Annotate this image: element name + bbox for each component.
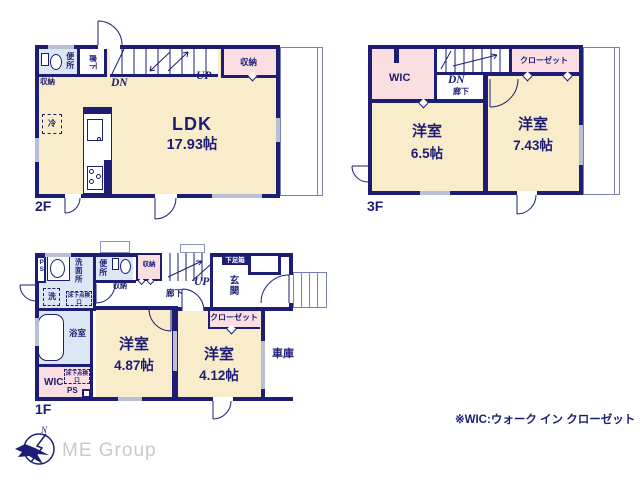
wall-3f-wic-stub [394,49,399,63]
label-1f-up: UP [194,276,209,289]
window-1f-room2-right [261,341,265,389]
toilet-1f-tank-icon [112,258,119,270]
label-2f-storage: 収納 [226,58,271,67]
label-2f-storage-left: 収納 [40,78,55,86]
wall-1f-bath-right [90,311,93,400]
balcony-2f-rail [317,48,318,195]
label-1f-toilet: 便所 [98,259,107,277]
eaves-1f-b [180,244,205,253]
toilet-2f-tank-icon [41,53,49,66]
window-1f-left-bath [35,318,39,346]
window-3f-right [579,125,583,165]
window-1f-bottom-left [118,397,142,401]
label-1f-ps-top: PS [38,259,45,273]
entrance-step-line [309,272,310,308]
label-1f-ps-bottom: PS [67,387,78,396]
kitchen-cap [83,107,112,113]
window-2f-bottom [212,194,262,198]
label-floor-3f: 3F [367,199,383,214]
label-1f-wic: WIC [44,377,63,388]
label-3f-room2: 洋室 [483,117,583,134]
label-2f-up: UP [196,70,211,83]
stairs-3f-treads [437,49,509,72]
label-1f-shoebox: 下足箱 [222,257,248,264]
room-1f-bedroom1 [96,310,172,397]
stove-burner-icon [89,179,94,184]
stove-burner-icon [96,174,101,179]
wall-1f-washroom-bottom [35,308,96,311]
kitchen-faucet-icon [97,137,101,141]
label-2f-dn: DN [111,77,128,90]
label-1f-storage-small: 収納 [113,283,127,291]
door-gap-2f-top [98,45,120,49]
label-1f-laundry: 洗 [48,293,56,302]
bathtub-icon [38,314,64,361]
kitchen-divider [104,160,112,194]
window-2f-right [276,118,280,142]
entrance-step-line [317,272,318,308]
window-2f-top [48,45,74,49]
label-3f-hall: 廊下 [453,88,469,97]
balcony-3f-rail [614,48,615,194]
toilet-2f-bowl-icon [50,54,62,70]
label-floor-2f: 2F [35,199,51,214]
label-1f-hall: 廊下 [166,289,183,298]
wall-1f-bottom [35,397,293,401]
door-gap-1f-room2 [182,307,204,311]
toilet-1f-bowl-icon [120,259,131,274]
label-1f-hatch-top: 床下点検口 [68,293,90,306]
label-1f-room2: 洋室 [169,347,269,364]
label-2f-hall: 廊下 [88,55,96,70]
label-3f-room1: 洋室 [377,124,477,141]
door-gap-2f-b2 [155,194,177,198]
wic-note: ※WIC:ウォーク イン クローゼット [455,414,635,427]
window-1f-top [45,253,71,257]
label-2f-ldk-size: 17.93帖 [142,138,242,154]
label-3f-wic: WIC [389,72,410,84]
brand-text: ME Group [62,441,157,462]
label-2f-ldk: LDK [142,115,242,135]
label-1f-closet: クローゼット [208,314,260,323]
label-3f-closet: クローゼット [511,57,577,66]
wall-1f-stairs-right [210,253,213,307]
sink-basin-icon [50,259,65,278]
window-3f-bottom [420,191,450,195]
compass-logo: N [12,424,64,476]
door-gap-1f-bottom [213,397,233,401]
label-2f-fridge: 冷 [48,120,56,129]
label-floor-1f: 1F [35,402,51,417]
door-gap-3f-bottom [517,191,537,195]
stove-burner-icon [89,169,94,174]
label-3f-room2-size: 7.43帖 [483,139,583,154]
entrance-cabinet [248,253,281,275]
floor-plan-canvas: 便所 廊下 DN UP 収納 収納 LDK 17.93帖 冷 [0,0,640,480]
label-1f-storage: 収納 [136,261,162,268]
entrance-steps [293,272,327,308]
door-lintel-2f-b1 [65,194,81,198]
label-2f-toilet: 便所 [65,52,74,70]
label-3f-dn: DN [448,74,465,87]
label-1f-room2-size: 4.12帖 [169,369,269,384]
window-2f-left [35,138,39,162]
eaves-1f-a [100,241,130,253]
label-1f-garage: 車庫 [272,348,294,360]
ps-box-1f-bottom [82,389,91,398]
label-3f-room1-size: 6.5帖 [377,147,477,162]
entrance-step-line [301,272,302,308]
label-1f-washroom: 洗面所 [74,258,82,284]
compass-north-label: N [40,425,48,435]
wall-1f-hall-bottom [93,306,178,310]
label-1f-entrance: 玄関 [227,275,237,296]
